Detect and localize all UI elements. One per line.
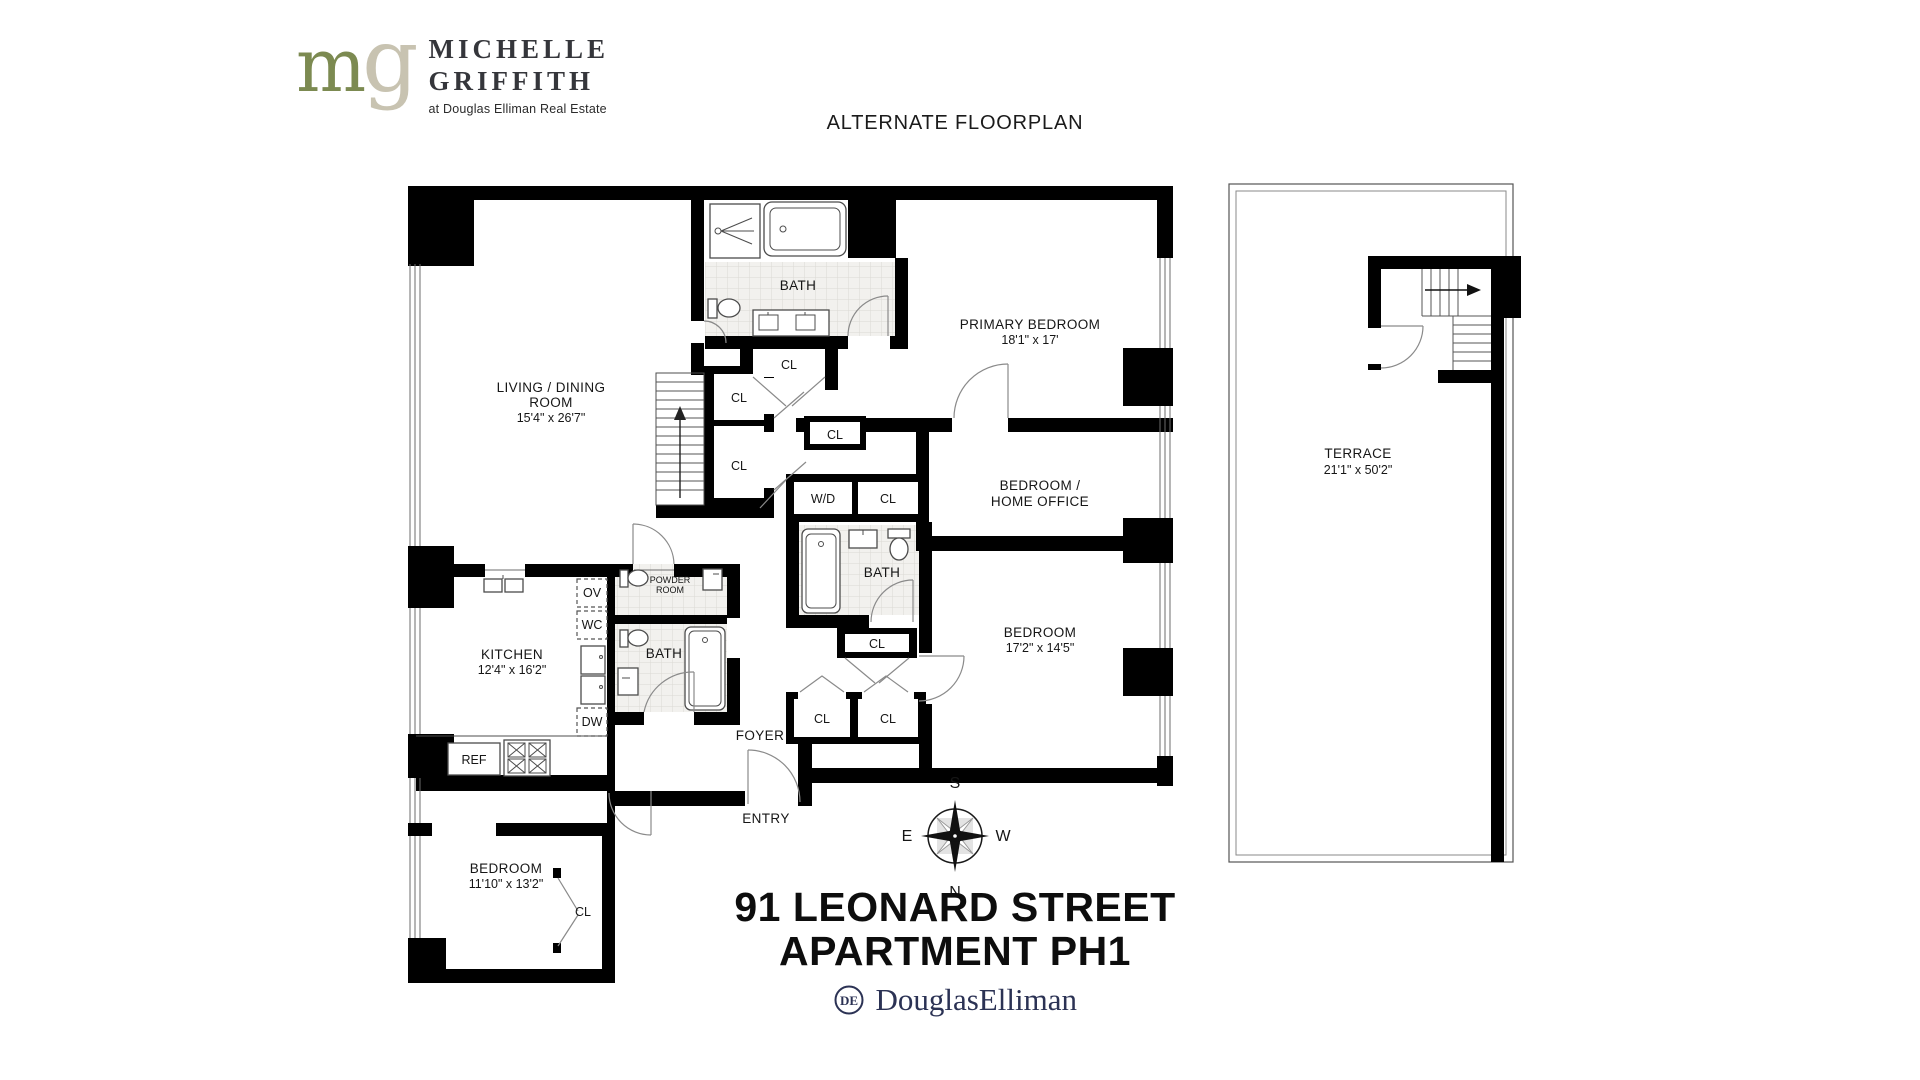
toilet: [620, 570, 628, 587]
kitchen-dims: 12'4" x 16'2": [478, 663, 547, 677]
closet-label: CL: [814, 712, 830, 726]
entry-label: ENTRY: [742, 811, 790, 826]
living-room-label2: ROOM: [529, 395, 573, 410]
agent-first-name: MICHELLE: [429, 34, 610, 66]
wine-cooler-label: WC: [582, 618, 603, 632]
monogram-g: g: [362, 9, 414, 112]
primary-bath-label: BATH: [780, 278, 817, 293]
living-room-dims: 15'4" x 26'7": [517, 411, 586, 425]
monogram-m: m: [296, 23, 362, 109]
staircase: [656, 373, 704, 505]
refrigerator-label: REF: [462, 753, 487, 767]
powder-room-label2: ROOM: [656, 585, 684, 595]
address-line2: APARTMENT PH1: [700, 930, 1210, 974]
mg-monogram: mg: [296, 26, 415, 96]
main-floorplan: LIVING / DINING ROOM 15'4" x 26'7" BATH …: [408, 178, 1173, 983]
closet-label: CL: [827, 428, 843, 442]
compass-w: W: [995, 828, 1011, 845]
powder-room-label: POWDER: [650, 575, 691, 585]
home-office-label: BEDROOM /: [1000, 478, 1081, 493]
primary-bedroom-dims: 18'1" x 17': [1001, 333, 1058, 347]
home-office-label2: HOME OFFICE: [991, 494, 1089, 509]
closet-label: CL: [731, 391, 747, 405]
hall-bath-label: BATH: [646, 646, 683, 661]
sink: [703, 569, 722, 590]
closet-label: CL: [880, 492, 896, 506]
address-line1: 91 LEONARD STREET: [700, 886, 1210, 930]
bedroom2-label: BEDROOM: [1004, 625, 1077, 640]
terrace-door: [1381, 326, 1423, 368]
bedroom3-dims: 11'10" x 13'2": [469, 877, 544, 891]
floorplan-page: mg MICHELLE GRIFFITH at Douglas Elliman …: [0, 0, 1920, 1080]
bathtub: [764, 202, 846, 256]
closet-label: CL: [869, 637, 885, 651]
elliman-monogram-icon: DE: [833, 984, 865, 1016]
compass-s: S: [950, 775, 961, 792]
living-room-label: LIVING / DINING: [497, 380, 606, 395]
fridge-lower: [581, 676, 605, 704]
closet-label: CL: [781, 358, 797, 372]
stair-bulkhead-walls: [1368, 256, 1521, 862]
primary-bedroom-label: PRIMARY BEDROOM: [960, 317, 1101, 332]
compass-rose: S N E W: [895, 770, 1015, 902]
washer-dryer-label: W/D: [811, 492, 835, 506]
terrace-dims: 21'1" x 50'2": [1324, 463, 1393, 477]
closet-label: CL: [880, 712, 896, 726]
property-address: 91 LEONARD STREET APARTMENT PH1: [700, 886, 1210, 974]
agent-tagline: at Douglas Elliman Real Estate: [429, 102, 610, 116]
dishwasher-label: DW: [582, 715, 603, 729]
kitchen-sink: [484, 579, 502, 592]
sink: [618, 668, 638, 695]
kitchen-label: KITCHEN: [481, 647, 543, 662]
douglas-elliman-logo: DE DouglasElliman: [700, 982, 1210, 1018]
toilet: [888, 529, 910, 538]
agent-name-block: MICHELLE GRIFFITH at Douglas Elliman Rea…: [429, 34, 610, 116]
closet-label: CL: [731, 459, 747, 473]
bedroom3-label: BEDROOM: [470, 861, 543, 876]
bathtub: [685, 627, 725, 710]
middle-bath-label: BATH: [864, 565, 901, 580]
double-vanity: [753, 310, 829, 336]
agent-last-name: GRIFFITH: [429, 66, 610, 98]
plan-title: ALTERNATE FLOORPLAN: [720, 112, 1190, 135]
elliman-wordmark: DouglasElliman: [875, 982, 1076, 1018]
compass-e: E: [902, 828, 913, 845]
elliman-monogram-letters: DE: [840, 993, 858, 1008]
toilet: [708, 299, 717, 318]
oven-label: OV: [583, 586, 602, 600]
closet-label: CL: [575, 905, 591, 919]
terrace-stairs: [1381, 269, 1491, 370]
terrace-plan: TERRACE 21'1" x 50'2": [1225, 178, 1536, 868]
bedroom2-dims: 17'2" x 14'5": [1006, 641, 1075, 655]
terrace-label: TERRACE: [1324, 446, 1391, 461]
foyer-label: FOYER: [736, 728, 785, 743]
fridge-upper: [581, 646, 605, 674]
toilet: [620, 630, 628, 647]
agent-logo: mg MICHELLE GRIFFITH at Douglas Elliman …: [296, 26, 609, 116]
